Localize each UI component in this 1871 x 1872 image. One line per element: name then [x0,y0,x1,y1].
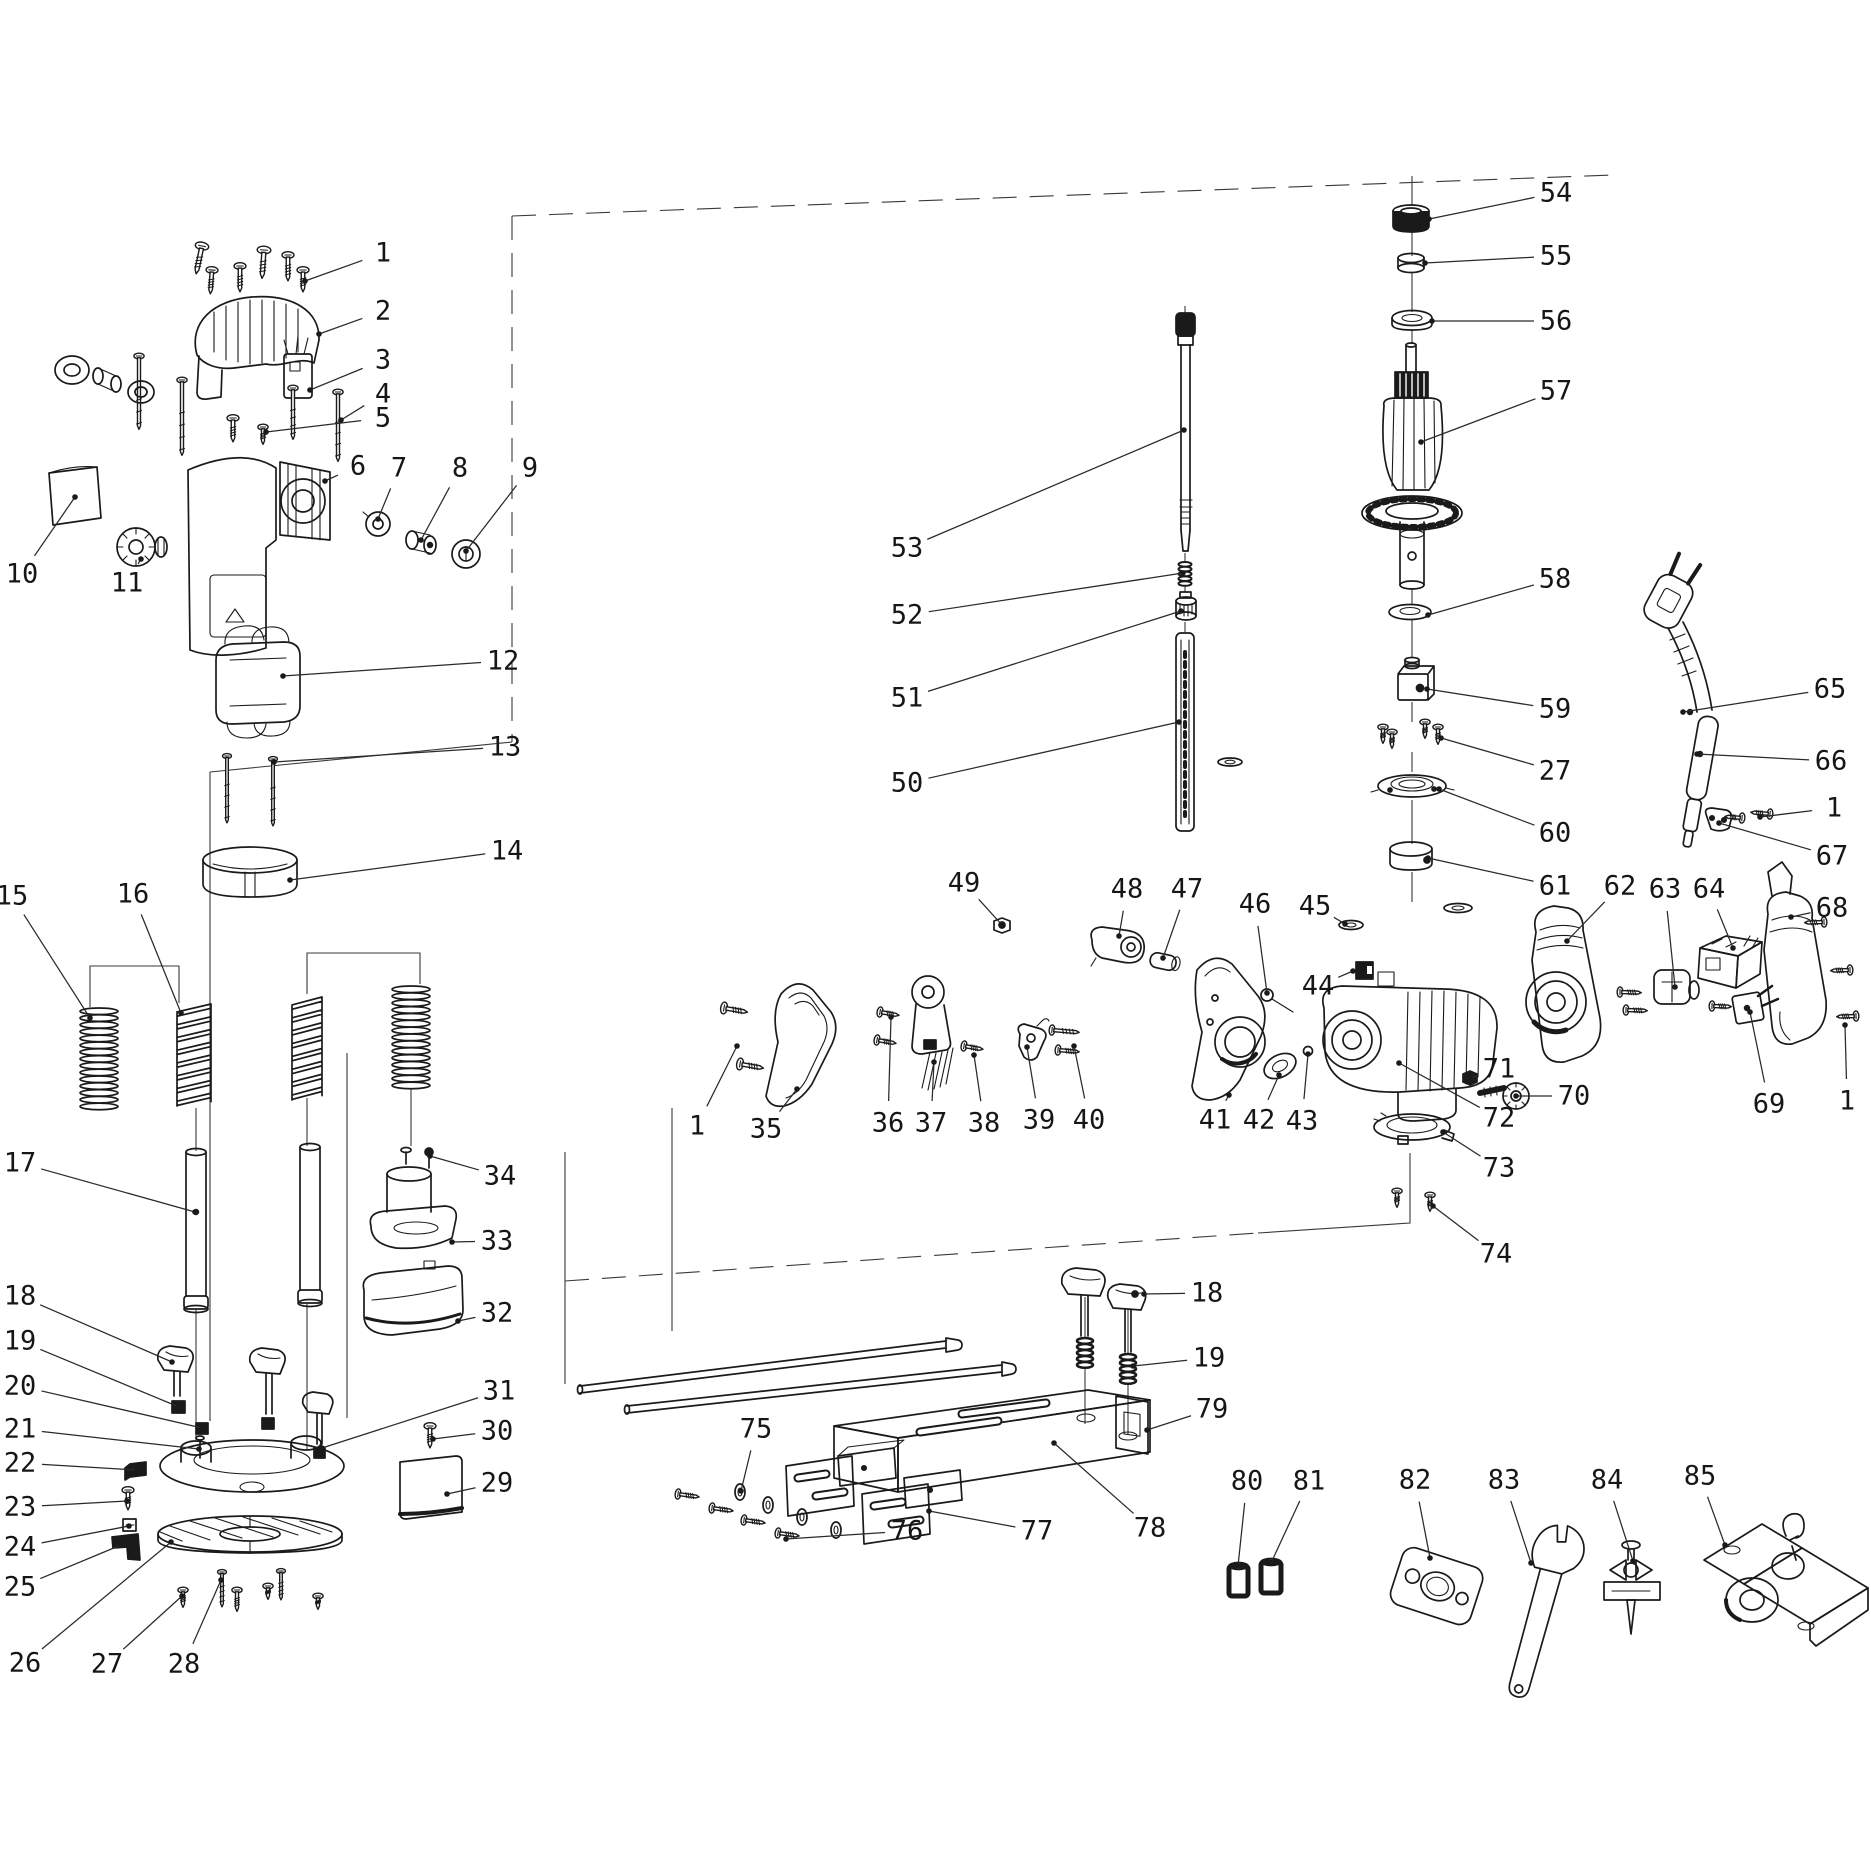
leader-line [1667,911,1675,987]
leader-line [193,1580,221,1644]
leader-dot [1716,820,1722,826]
leader-dot [1842,1022,1848,1028]
part-68-screws [1805,917,1859,1022]
leader-line [779,1089,797,1112]
leader-dot [319,1445,325,1451]
leader-line [1147,1416,1191,1430]
callout-16-15: 16 [117,879,184,1016]
part-number-24: 24 [4,1532,37,1563]
screw [227,415,239,442]
leader-line [430,1156,479,1170]
callout-76-81: 76 [783,1516,923,1547]
leader-dot [734,1043,740,1049]
leader-dot [1144,1427,1150,1433]
part-36-screws [873,1006,900,1048]
leader-dot [1276,1072,1282,1078]
callout-1-72: 1 [1839,1022,1855,1116]
leader-dot [1424,686,1430,692]
part-number-46: 46 [1239,889,1272,920]
exploded-parts-diagram: 1234567891011121314151617181920212223242… [0,0,1871,1872]
exploded-parts-diagram-page: 1234567891011121314151617181920212223242… [0,0,1871,1872]
part-number-43: 43 [1286,1106,1319,1137]
leader-line [1439,789,1534,825]
part-19-spring-fence [1077,1338,1093,1368]
part-number-34: 34 [484,1161,517,1192]
callout-63-64: 63 [1649,874,1682,990]
callout-68-70: 68 [1788,893,1848,924]
callout-73-76: 73 [1440,1129,1515,1183]
leader-dot [1630,1558,1636,1564]
leader-line [274,748,483,762]
part-74-screws [1392,1188,1435,1211]
part-number-82: 82 [1399,1465,1432,1496]
part-number-84: 84 [1591,1465,1624,1496]
leader-dot [375,516,381,522]
part-27-28-base-screws [178,1569,323,1612]
leader-dot [87,1015,93,1021]
leader-line [928,722,1179,778]
part-number-33: 33 [481,1226,514,1257]
leader-line [1429,197,1534,219]
leader-dot [1024,1044,1030,1050]
part-number-7: 7 [391,453,407,484]
part-number-53: 53 [891,533,924,564]
part-number-16: 16 [117,879,150,910]
part-number-23: 23 [4,1492,37,1523]
leader-dot [455,1318,461,1324]
screw [1433,724,1443,744]
leader-line [1567,902,1605,941]
leader-dot [1440,1129,1446,1135]
leader-dot [463,548,469,554]
leader-dot [888,1014,894,1020]
screw [1837,1011,1859,1022]
part-9-cap [452,540,480,568]
leader-dot [1176,719,1182,725]
part-number-1: 1 [689,1111,705,1142]
leader-line [1750,1012,1765,1082]
part-60-flange [1371,775,1454,797]
callout-13-12: 13 [271,732,521,765]
leader-dot [1467,1075,1473,1081]
part-number-1: 1 [375,238,391,269]
leader-dot [134,1467,140,1473]
part-58-washer [1389,605,1431,620]
part-64-switch [1698,936,1762,988]
part-number-48: 48 [1111,874,1144,905]
leader-dot [218,1577,224,1583]
part-number-77: 77 [1021,1516,1054,1547]
part-number-65: 65 [1814,674,1847,705]
part-13-screws [223,754,278,826]
leader-dot [1418,439,1424,445]
callout-59-59: 59 [1424,686,1571,724]
part-number-6: 6 [350,451,366,482]
part-number-27: 27 [1539,756,1572,787]
leader-dot [1264,990,1270,996]
leader-dot [783,1536,789,1542]
leader-dot [738,1488,744,1494]
part-1-handle-screws [720,1002,765,1074]
part-number-12: 12 [487,646,520,677]
callout-47-47: 47 [1160,874,1203,961]
leader-dot [1757,814,1763,820]
leader-dot [449,1239,455,1245]
part-number-18: 18 [1191,1278,1224,1309]
part-number-45: 45 [1299,891,1332,922]
part-number-52: 52 [891,600,924,631]
part-number-19: 19 [1193,1343,1226,1374]
leader-line [1511,1501,1531,1563]
leader-dot [1141,1291,1147,1297]
callout-28-27: 28 [168,1577,224,1679]
callout-75-80: 75 [738,1414,772,1494]
leader-dot [1427,1555,1433,1561]
part-number-27: 27 [91,1649,124,1680]
leader-line [322,1398,478,1448]
screw [740,1515,765,1528]
leader-dot [1694,751,1700,757]
leader-dot [126,1523,132,1529]
callout-11-10: 11 [111,556,144,598]
screw [234,263,246,292]
part-15-spring [80,1008,118,1110]
callout-83-88: 83 [1488,1465,1534,1566]
screw [736,1058,765,1074]
leader-dot [1226,1092,1232,1098]
leader-dot [1747,1009,1753,1015]
part-number-20: 20 [4,1371,37,1402]
callout-34-33: 34 [427,1153,516,1191]
callout-62-63: 62 [1564,871,1636,944]
leader-dot [322,478,328,484]
leader-line [1054,1443,1134,1513]
part-number-73: 73 [1483,1153,1516,1184]
leader-line [319,318,362,334]
leader-dot [971,1052,977,1058]
leader-line [1425,257,1534,263]
leader-line [341,406,364,420]
callout-42-42: 42 [1243,1072,1282,1135]
leader-line [1258,926,1267,993]
leader-dot [196,1446,202,1452]
leader-line [40,1545,121,1579]
callout-74-77: 74 [1430,1203,1512,1269]
screw [1623,1005,1647,1016]
leader-line [1074,1046,1085,1098]
part-number-54: 54 [1540,178,1573,209]
screw [313,1593,323,1609]
part-number-72: 72 [1483,1103,1516,1134]
part-number-30: 30 [481,1416,514,1447]
leader-dot [199,1425,205,1431]
part-number-42: 42 [1243,1105,1276,1136]
leader-dot [192,1209,198,1215]
callout-15-14: 15 [0,881,93,1021]
leader-line [927,430,1184,539]
part-number-79: 79 [1196,1394,1229,1425]
part-16-spring [177,1004,211,1106]
leader-dot [316,331,322,337]
callout-61-62: 61 [1425,855,1571,901]
callout-58-58: 58 [1425,564,1571,618]
leader-line [1027,1047,1035,1098]
part-2-motor-cover [195,297,319,399]
leader-dot [1513,1093,1519,1099]
callout-33-32: 33 [449,1226,513,1257]
part-number-56: 56 [1540,306,1573,337]
part-number-74: 74 [1480,1239,1513,1270]
part-62-handle-shell-left [1526,906,1601,1062]
part-number-62: 62 [1604,871,1637,902]
screw [1387,729,1397,748]
callout-44-44: 44 [1302,968,1356,1001]
leader-dot [338,417,344,423]
callout-80-85: 80 [1231,1466,1264,1569]
callout-36-36: 36 [872,1014,905,1138]
screw [218,1570,227,1607]
screw [1378,724,1388,743]
part-73-lock-ring [1374,1113,1454,1144]
callout-1-34: 1 [689,1043,740,1141]
part-15b-spring [392,986,430,1089]
screw [960,1040,984,1054]
part-number-80: 80 [1231,1466,1264,1497]
part-number-55: 55 [1540,241,1573,272]
screw [204,266,218,294]
part-number-51: 51 [891,683,924,714]
leader-line [1163,910,1180,958]
part-30-screw [424,1423,436,1448]
part-number-83: 83 [1488,1465,1521,1496]
screw [255,246,271,279]
callout-8-7: 8 [418,453,468,543]
leader-dot [271,759,277,765]
part-number-8: 8 [452,453,468,484]
part-number-11: 11 [111,568,144,599]
callout-1-0: 1 [302,238,391,284]
callout-6-5: 6 [322,451,366,484]
part-7-brush-cap [363,512,390,536]
part-82-base-plate [1387,1545,1485,1628]
part-33-dust-hood-upper [370,1167,456,1248]
leader-line [141,914,181,1013]
leader-dot [168,1539,174,1545]
leader-line [40,1305,172,1362]
leader-dot [1268,1560,1274,1566]
leader-dot [418,537,424,543]
leader-line [1443,1132,1480,1156]
leader-line [1683,692,1808,712]
part-number-15: 15 [0,881,28,912]
screw [1724,811,1745,823]
part-fence-rods [578,1338,1017,1414]
callout-39-39: 39 [1023,1044,1056,1135]
part-85-roller-guide [1704,1514,1868,1646]
callout-60-61: 60 [1436,786,1571,848]
part-number-64: 64 [1693,874,1726,905]
leader-dot [124,1498,130,1504]
callout-79-84: 79 [1144,1394,1228,1433]
part-number-25: 25 [4,1572,37,1603]
part-41-handle-inner [1192,958,1265,1100]
callout-52-52: 52 [891,570,1186,630]
callout-40-40: 40 [1071,1043,1105,1135]
part-35-handle-grip [766,984,836,1106]
part-number-32: 32 [481,1298,514,1329]
part-number-26: 26 [9,1648,42,1679]
leader-line [1133,1360,1187,1366]
callout-69-71: 69 [1747,1009,1785,1119]
leader-dot [1438,735,1444,741]
leader-line [929,1511,1015,1527]
part-number-17: 17 [4,1148,37,1179]
leader-line [452,1241,475,1242]
callout-38-38: 38 [968,1052,1001,1138]
leader-dot [1350,968,1356,974]
leader-line [1119,911,1123,936]
part-29-plate [400,1456,462,1519]
callout-30-29: 30 [430,1416,513,1447]
leader-line [1304,1054,1308,1099]
part-27-screws-right [1378,719,1443,748]
part-number-50: 50 [891,768,924,799]
leader-line [1271,1501,1300,1563]
part-number-39: 39 [1023,1105,1056,1136]
leader-line [1427,689,1533,706]
part-number-5: 5 [375,403,391,434]
leader-dot [1342,921,1348,927]
leader-line [310,368,363,390]
part-6-motor-housing [188,458,330,655]
leader-dot [1722,1542,1728,1548]
callout-17-16: 17 [4,1148,198,1215]
leader-line [42,1542,171,1649]
leader-line [42,1501,127,1506]
leader-dot [1429,318,1435,324]
leader-line [466,485,517,551]
part-14-clamp-ring [203,847,297,897]
leader-dot [280,673,286,679]
leader-line [1719,823,1811,850]
callout-32-31: 32 [455,1298,513,1329]
part-number-10: 10 [6,559,39,590]
part-1-top-screws [189,241,309,294]
screw [876,1006,900,1020]
part-number-49: 49 [948,868,981,899]
part-57-armature [1362,343,1462,589]
part-44-key-block [1356,962,1373,979]
callout-53-53: 53 [891,427,1187,563]
leader-line [889,1017,891,1101]
callout-77-82: 77 [926,1508,1053,1546]
leader-dot [931,1059,937,1065]
part-number-59: 59 [1539,694,1572,725]
leader-dot [427,1153,433,1159]
leader-dot [1116,933,1122,939]
construction-lines [90,175,1612,1450]
part-number-71: 71 [1483,1054,1516,1085]
leader-line [1433,1206,1479,1241]
screw [122,1487,134,1510]
leader-dot [430,1436,436,1442]
part-number-69: 69 [1753,1089,1786,1120]
callout-66-67: 66 [1694,746,1847,777]
part-number-61: 61 [1539,871,1572,902]
callout-82-87: 82 [1399,1465,1433,1561]
callout-50-50: 50 [891,719,1182,798]
part-number-9: 9 [522,453,538,484]
callout-43-43: 43 [1286,1051,1319,1136]
leader-line [24,915,90,1018]
part-63-screws [1617,987,1731,1016]
leader-line [266,421,361,432]
screw [282,252,294,281]
leader-line [1707,1497,1725,1545]
leader-dot [444,1491,450,1497]
part-26-sub-base [158,1516,342,1553]
part-48-lock-lever [1091,927,1144,966]
leader-dot [926,1508,932,1514]
part-39-bracket [1018,1019,1049,1060]
callout-84-89: 84 [1591,1465,1636,1564]
leader-dot [1071,1043,1077,1049]
leader-dot [999,922,1005,928]
leader-dot [1130,1363,1136,1369]
part-number-3: 3 [375,345,391,376]
part-number-19: 19 [4,1326,37,1357]
leader-line [974,1055,981,1101]
leader-dot [1305,1051,1311,1057]
part-number-63: 63 [1649,874,1682,905]
leader-dot [1425,855,1431,861]
leader-dot [1422,260,1428,266]
part-number-18: 18 [4,1281,37,1312]
screw [288,385,298,439]
part-54-fan-gear [1393,205,1429,232]
callout-64-65: 64 [1693,874,1736,951]
callout-67-69: 67 [1716,820,1848,871]
callout-23-22: 23 [4,1492,130,1523]
part-32-dust-hood-lower [363,1261,463,1335]
part-number-78: 78 [1134,1513,1167,1544]
part-61-spacer-ring [1390,842,1432,870]
leader-dot [1730,945,1736,951]
leader-line [41,1169,195,1212]
part-number-36: 36 [872,1108,905,1139]
leader-dot [287,877,293,883]
part-51-adjust-nut [1176,592,1196,620]
part-number-28: 28 [168,1649,201,1680]
callout-35-35: 35 [750,1086,800,1144]
screw [708,1503,733,1516]
leader-dot [1426,216,1432,222]
part-number-22: 22 [4,1448,37,1479]
leader-line [283,662,481,676]
callout-19-79: 19 [1130,1343,1225,1374]
callout-12-11: 12 [280,646,519,679]
leader-line [42,1431,199,1449]
part-number-37: 37 [915,1108,948,1139]
leader-dot [794,1086,800,1092]
part-47-pin-cylinder [1149,951,1181,972]
screw [263,1583,273,1599]
part-38-screw [960,1040,984,1054]
callout-37-37: 37 [915,1059,948,1138]
part-number-66: 66 [1815,746,1848,777]
part-65-66-power-cord [1640,551,1720,848]
part-16b-spring [292,997,322,1100]
